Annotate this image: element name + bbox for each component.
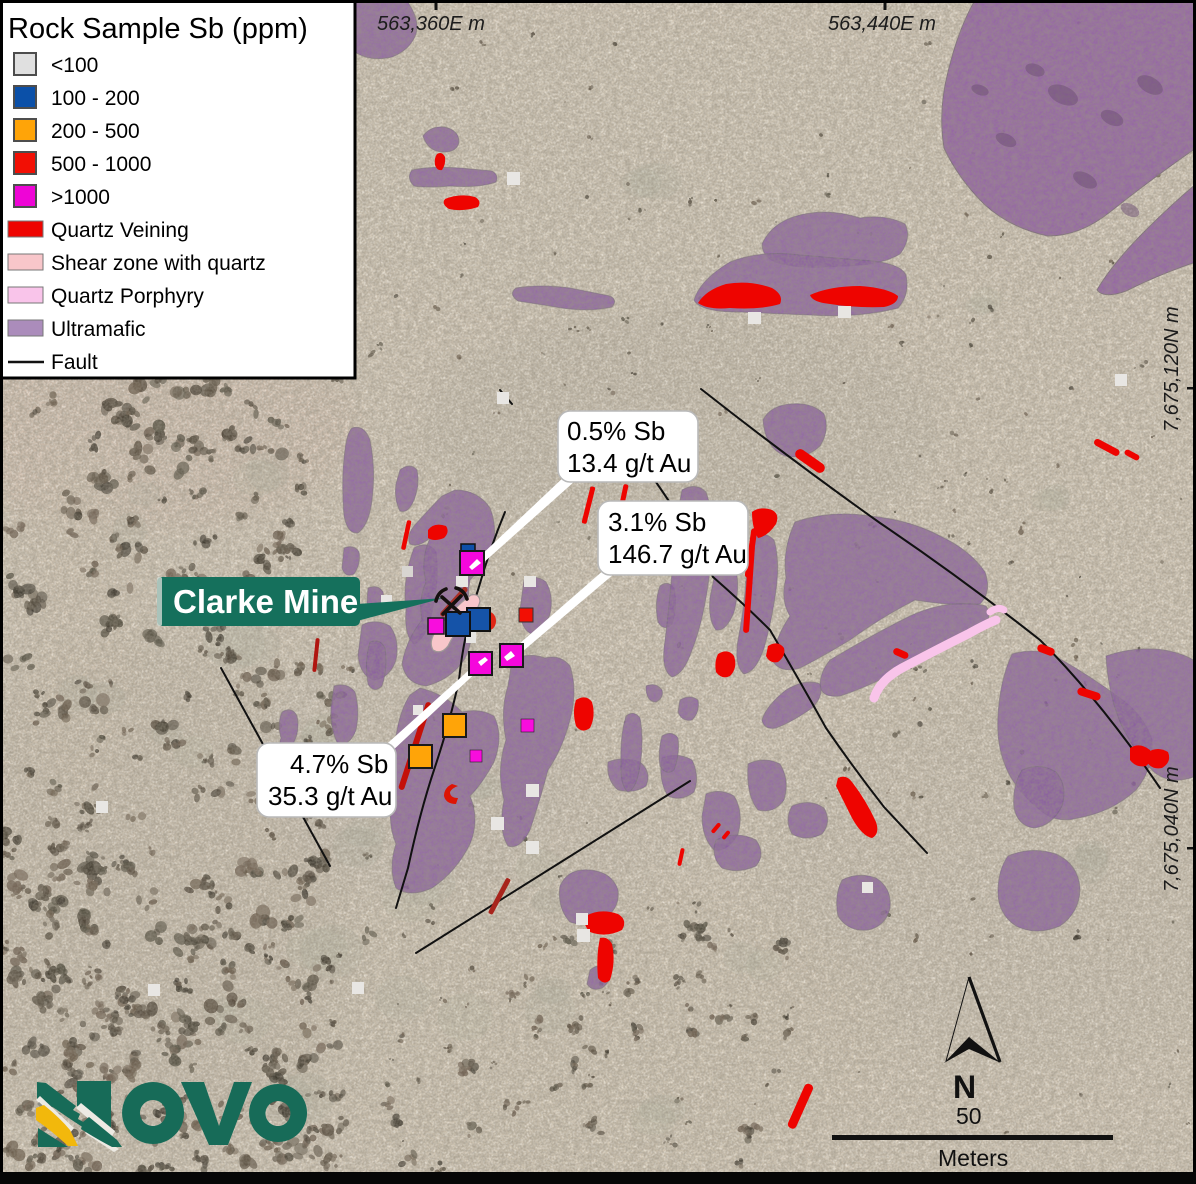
svg-text:<100: <100 — [51, 54, 98, 77]
svg-text:146.7 g/t Au: 146.7 g/t Au — [608, 539, 747, 569]
svg-text:50: 50 — [956, 1103, 982, 1129]
svg-text:4.7% Sb: 4.7% Sb — [290, 749, 388, 779]
svg-text:13.4 g/t Au: 13.4 g/t Au — [567, 448, 691, 478]
svg-text:7,675,040N m: 7,675,040N m — [1161, 766, 1183, 892]
svg-text:7,675,120N m: 7,675,120N m — [1161, 306, 1183, 432]
svg-text:Quartz Veining: Quartz Veining — [51, 219, 189, 242]
svg-text:Fault: Fault — [51, 351, 98, 374]
svg-text:200 - 500: 200 - 500 — [51, 120, 140, 143]
svg-text:Rock Sample Sb (ppm): Rock Sample Sb (ppm) — [8, 13, 308, 45]
svg-text:563,440E m: 563,440E m — [828, 13, 936, 35]
svg-text:3.1% Sb: 3.1% Sb — [608, 507, 706, 537]
svg-text:N: N — [953, 1069, 976, 1105]
svg-text:0.5% Sb: 0.5% Sb — [567, 416, 665, 446]
svg-text:100 - 200: 100 - 200 — [51, 87, 140, 110]
svg-text:Quartz Porphyry: Quartz Porphyry — [51, 285, 204, 308]
svg-text:Ultramafic: Ultramafic — [51, 318, 146, 341]
svg-text:Clarke Mine: Clarke Mine — [173, 583, 358, 620]
svg-text:35.3 g/t Au: 35.3 g/t Au — [268, 781, 392, 811]
svg-text:500 - 1000: 500 - 1000 — [51, 153, 151, 176]
svg-text:>1000: >1000 — [51, 186, 110, 209]
svg-text:Shear zone with quartz: Shear zone with quartz — [51, 252, 266, 275]
svg-text:563,360E m: 563,360E m — [377, 13, 485, 35]
svg-text:Meters: Meters — [938, 1145, 1008, 1171]
